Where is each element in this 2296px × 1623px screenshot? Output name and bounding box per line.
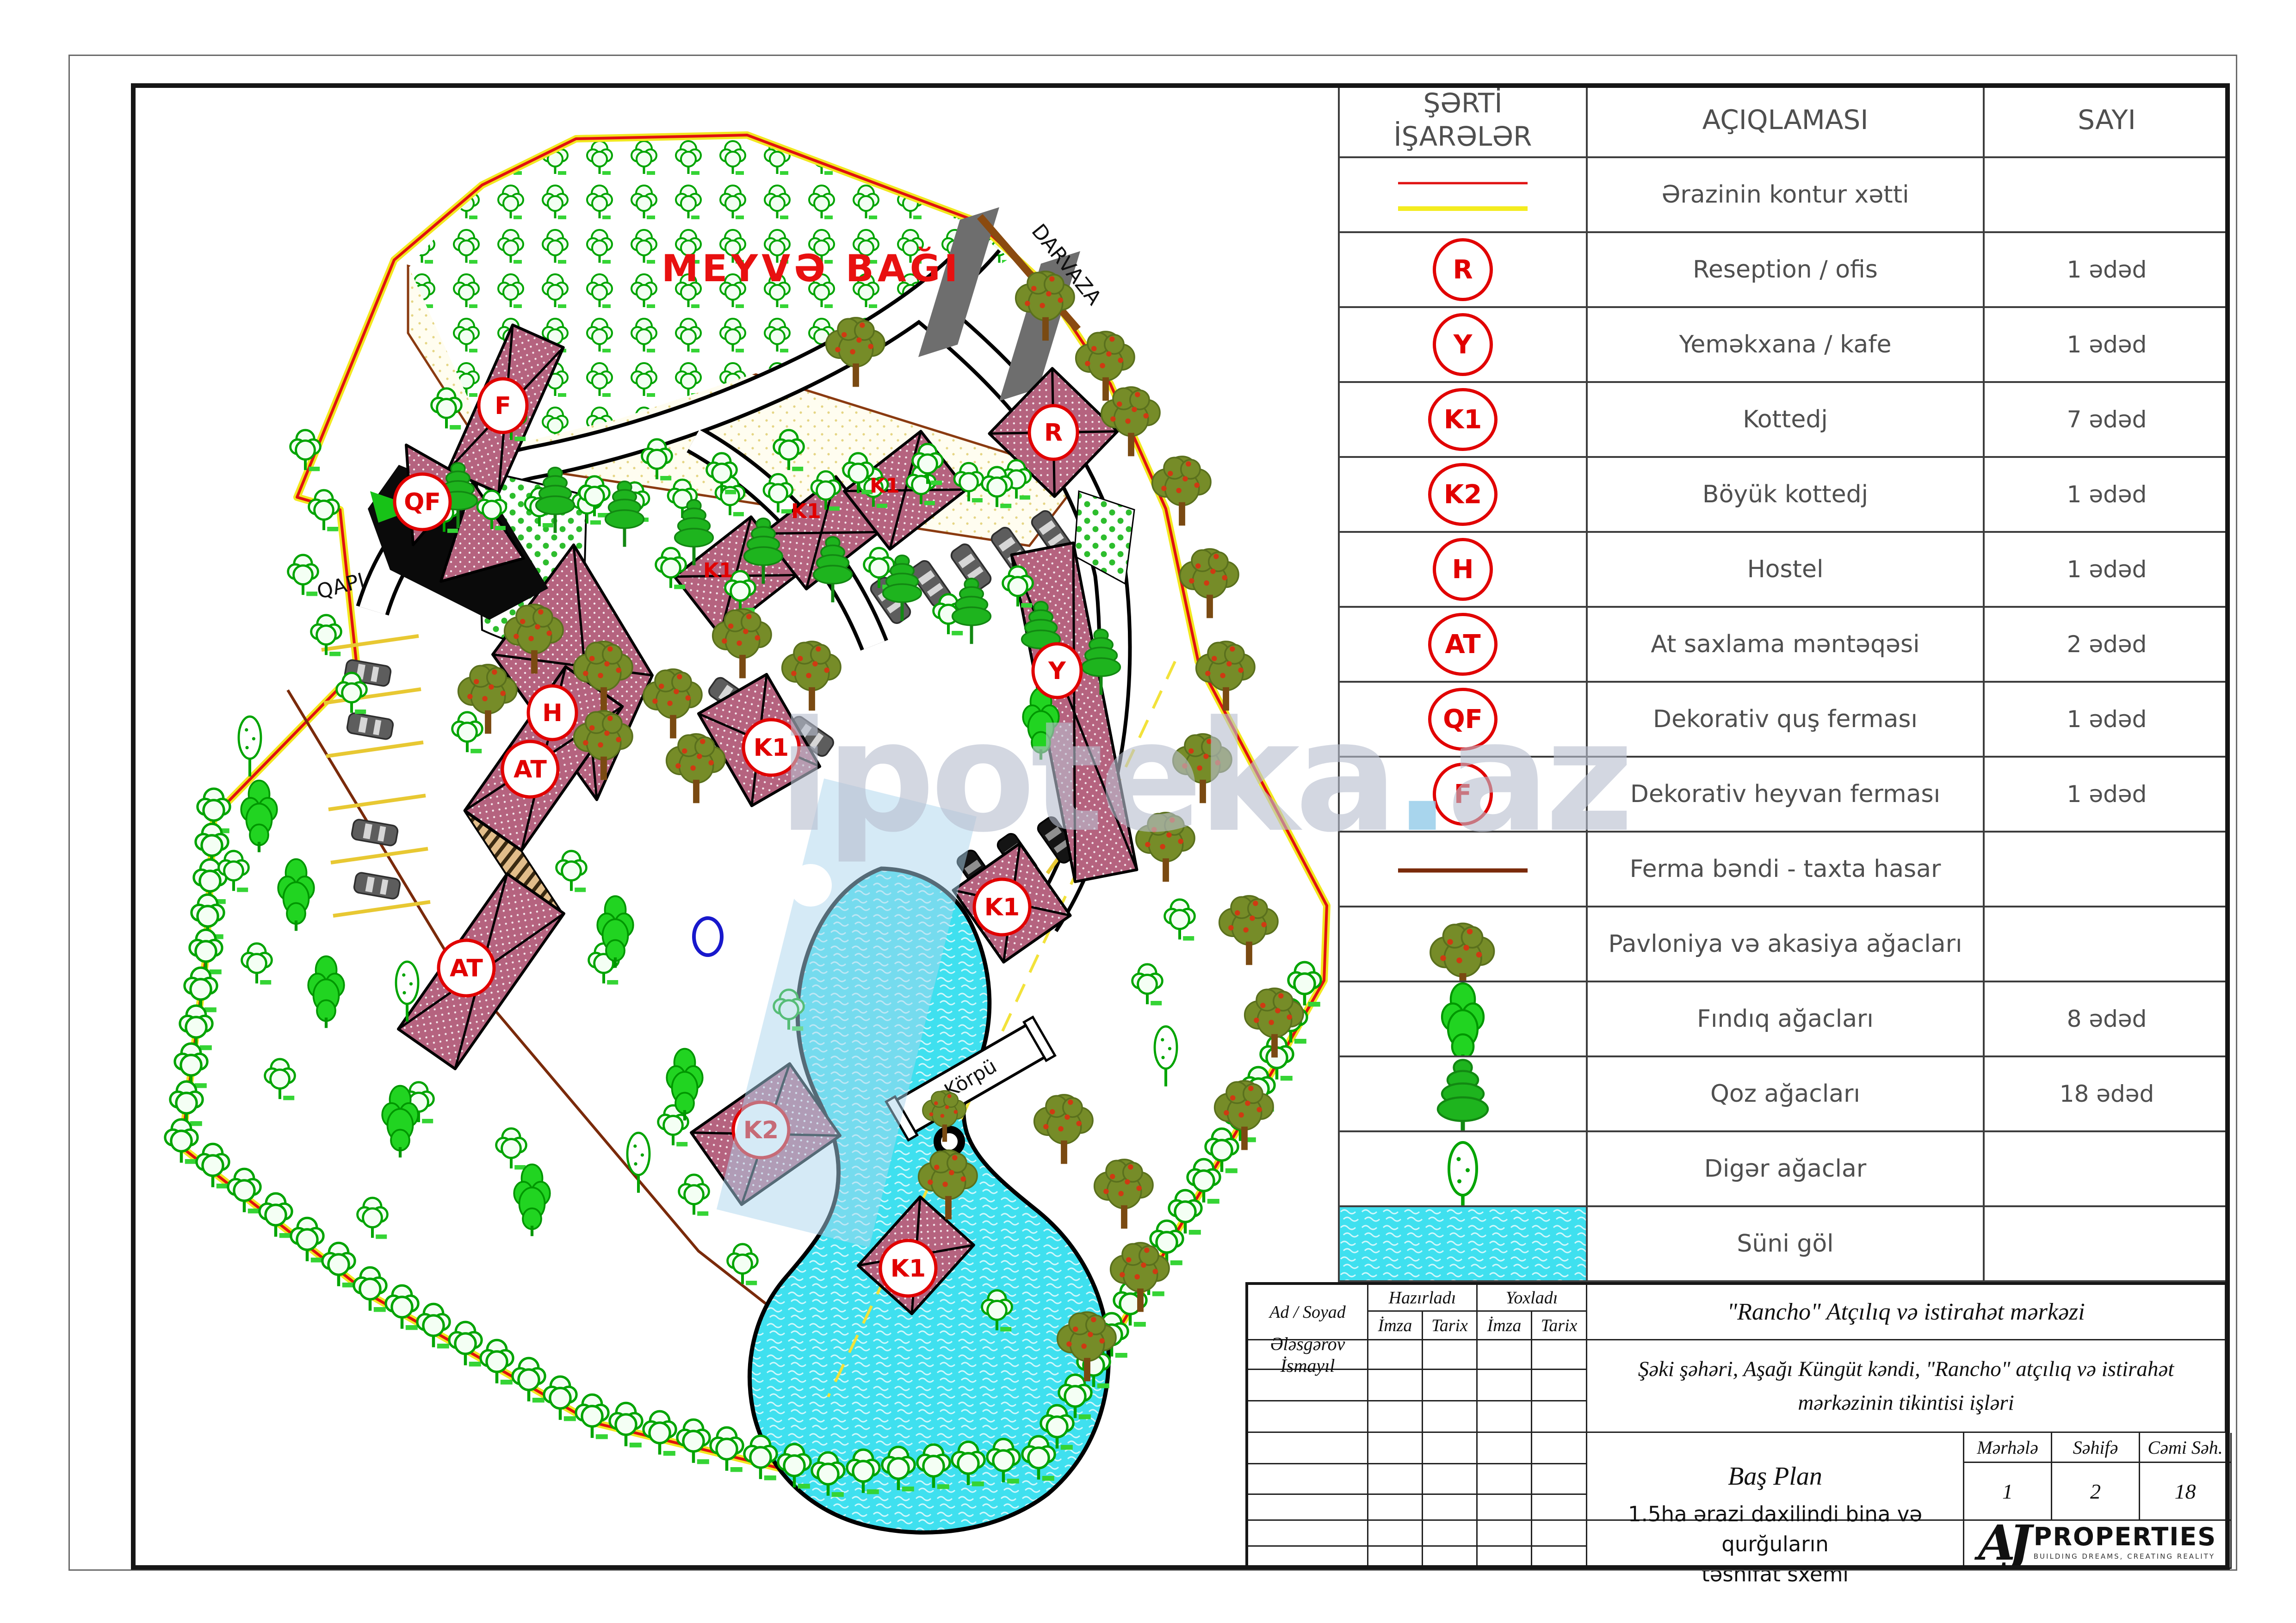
k1-text: K1 xyxy=(791,500,821,523)
svg-text:QF: QF xyxy=(404,488,441,516)
logo-monogram: AJ xyxy=(1978,1521,2034,1567)
r-badge-icon: R xyxy=(1433,238,1493,301)
svg-text:H: H xyxy=(542,699,563,727)
legend-row: Qoz ağacları 18 ədəd xyxy=(1340,1057,2229,1132)
prepared-header-cell: Hazırladı xyxy=(1368,1285,1478,1312)
legend-row: Ferma bəndi - taxta hasar xyxy=(1340,833,2229,907)
checked-header-cell: Yoxladı xyxy=(1478,1285,1587,1312)
y-badge-icon: Y xyxy=(1433,313,1493,376)
title-block: Ad / Soyad Hazırladı Yoxladı İmza Tarix … xyxy=(1245,1282,2229,1569)
svg-text:AT: AT xyxy=(450,955,483,982)
svg-text:Y: Y xyxy=(1048,657,1066,685)
legend-row: Süni göl xyxy=(1340,1207,2229,1282)
legend-row: K1 Kottedj 7 ədəd xyxy=(1340,383,2229,458)
badge-h: H xyxy=(528,686,576,740)
qf-badge-icon: QF xyxy=(1428,688,1498,751)
legend-row: AT At saxlama məntəqəsi 2 ədəd xyxy=(1340,608,2229,683)
legend-row: F Dekorativ heyvan ferması 1 ədəd xyxy=(1340,758,2229,833)
legend-row: H Hostel 1 ədəd xyxy=(1340,533,2229,608)
badge-at: AT xyxy=(439,940,494,996)
logo-name: PROPERTIES xyxy=(2034,1524,2216,1549)
name-header-cell: Ad / Soyad xyxy=(1248,1285,1368,1340)
orchard-label: MEYVƏ BAĞI xyxy=(662,247,961,290)
sheet-note: 1.5ha ərazi daxilindi bina və qurğuların… xyxy=(1587,1521,1964,1569)
legend-row: K2 Böyük kottedj 1 ədəd xyxy=(1340,458,2229,533)
author-cell: Ələsgərov İsmayıl xyxy=(1248,1340,1368,1370)
fence-line-icon xyxy=(1389,839,1537,899)
badge-at: AT xyxy=(502,741,558,797)
svg-text:F: F xyxy=(495,392,511,420)
svg-text:K1: K1 xyxy=(754,734,789,762)
legend-header-symbols: ŞƏRTİ xyxy=(1423,87,1502,119)
drawing-sheet: Körpü xyxy=(0,0,2296,1623)
legend-row: Ərazinin kontur xətti xyxy=(1340,158,2229,233)
svg-text:R: R xyxy=(1044,419,1063,447)
pavlonia-tree-icon xyxy=(1412,907,1514,981)
lake-swatch-icon xyxy=(1340,1207,1586,1280)
contour-line-icon xyxy=(1389,165,1537,225)
k2-badge-icon: K2 xyxy=(1428,463,1498,526)
stage-value: 1 xyxy=(1964,1463,2052,1521)
legend-header-description: AÇIQLAMASI xyxy=(1588,83,1985,156)
badge-y: Y xyxy=(1033,644,1081,697)
svg-text:AT: AT xyxy=(514,756,547,784)
well-marker xyxy=(694,918,722,955)
legend-row: Digər ağaclar xyxy=(1340,1132,2229,1207)
badge-f: F xyxy=(479,379,527,432)
page-value: 2 xyxy=(2052,1463,2140,1521)
legend-row: Pavloniya və akasiya ağacları xyxy=(1340,907,2229,982)
badge-k1: K1 xyxy=(743,720,799,775)
total-value: 18 xyxy=(2140,1463,2232,1521)
badge-r: R xyxy=(1029,406,1077,459)
legend-table: ŞƏRTİ İŞARƏLƏR AÇIQLAMASI SAYI Ərazinin … xyxy=(1338,83,2229,1282)
badge-qf: QF xyxy=(395,474,450,530)
at-badge-icon: AT xyxy=(1428,613,1498,676)
svg-text:K1: K1 xyxy=(984,894,1020,921)
walnut-tree-icon xyxy=(1412,1057,1514,1130)
svg-text:K1: K1 xyxy=(891,1255,926,1283)
k1-badge-icon: K1 xyxy=(1428,388,1498,451)
page-label: Səhifə xyxy=(2052,1433,2140,1463)
svg-text:K2: K2 xyxy=(743,1117,779,1144)
total-label: Cəmi Səh. xyxy=(2140,1433,2232,1463)
project-location: Şəki şəhəri, Aşağı Küngüt kəndi, "Rancho… xyxy=(1587,1340,2226,1433)
legend-row: QF Dekorativ quş ferması 1 ədəd xyxy=(1340,683,2229,758)
legend-row: Y Yeməkxana / kafe 1 ədəd xyxy=(1340,308,2229,383)
badge-k1: K1 xyxy=(974,879,1030,935)
f-badge-icon: F xyxy=(1433,763,1493,826)
badge-k1: K1 xyxy=(880,1240,936,1296)
legend-header: ŞƏRTİ İŞARƏLƏR AÇIQLAMASI SAYI xyxy=(1340,83,2229,158)
company-logo: AJ PROPERTIES BUILDING DREAMS, CREATING … xyxy=(1964,1521,2232,1569)
stage-label: Mərhələ xyxy=(1964,1433,2052,1463)
legend-row: Fındıq ağacları 8 ədəd xyxy=(1340,982,2229,1057)
k1-text: K1 xyxy=(870,474,900,498)
project-title: "Rancho" Atçılıq və istirahət mərkəzi xyxy=(1587,1285,2226,1340)
hazel-tree-icon xyxy=(1412,982,1514,1055)
badge-k2: K2 xyxy=(733,1102,789,1158)
h-badge-icon: H xyxy=(1433,538,1493,601)
legend-header-count: SAYI xyxy=(1985,83,2229,156)
other-tree-icon xyxy=(1412,1132,1514,1205)
logo-tagline: BUILDING DREAMS, CREATING REALITY xyxy=(2034,1552,2215,1561)
k1-text: K1 xyxy=(703,559,733,582)
legend-row: R Reseption / ofis 1 ədəd xyxy=(1340,233,2229,308)
